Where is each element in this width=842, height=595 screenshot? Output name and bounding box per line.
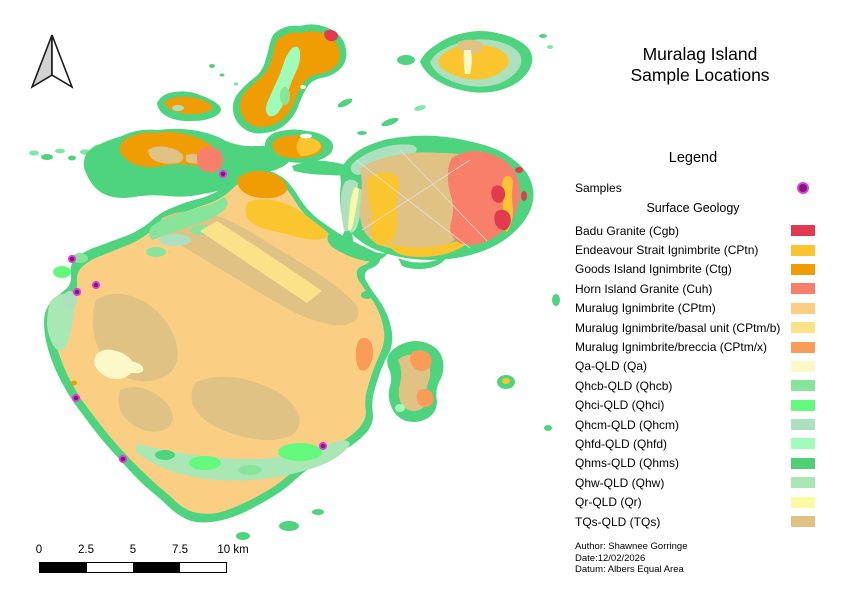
legend-item: Qhci-QLD (Qhci): [575, 396, 815, 415]
legend-item-label: Qhfd-QLD (Qhfd): [575, 437, 667, 451]
legend-item-label: Endeavour Strait Ignimbrite (CPtn): [575, 243, 758, 257]
sample-point: [220, 171, 226, 177]
legend-color-swatch: [791, 400, 815, 411]
scale-bar-tick-label: 5: [130, 544, 136, 556]
map-layout-page: Muralag Island Sample Locations Legend S…: [0, 0, 842, 595]
credit-date: Date:12/02/2026: [575, 553, 687, 565]
legend-item-label: Muralug Ignimbrite/breccia (CPtm/x): [575, 340, 767, 354]
legend-item: Badu Granite (Cgb): [575, 221, 815, 240]
legend-item: Muralug Ignimbrite (CPtm): [575, 299, 815, 318]
legend-color-swatch: [791, 361, 815, 372]
legend-item: Qhfd-QLD (Qhfd): [575, 434, 815, 453]
samples-label: Samples: [575, 181, 622, 195]
legend-item-label: Qhw-QLD (Qhw): [575, 476, 664, 490]
legend-color-swatch: [791, 477, 815, 488]
legend-item: Qhms-QLD (Qhms): [575, 454, 815, 473]
legend-item-label: Qhci-QLD (Qhci): [575, 398, 664, 412]
legend-item: Qa-QLD (Qa): [575, 357, 815, 376]
legend-item: TQs-QLD (TQs): [575, 512, 815, 531]
scale-segment: [40, 563, 87, 572]
legend-item-samples: Samples: [575, 179, 815, 195]
legend-item-label: Muralug Ignimbrite (CPtm): [575, 301, 716, 315]
sample-point: [93, 282, 99, 288]
legend-item: Qhcb-QLD (Qhcb): [575, 376, 815, 395]
legend-item: Muralug Ignimbrite/breccia (CPtm/x): [575, 337, 815, 356]
legend-items-list: Badu Granite (Cgb)Endeavour Strait Ignim…: [575, 221, 815, 531]
legend-group-heading: Surface Geology: [565, 201, 821, 215]
legend-item: Muralug Ignimbrite/basal unit (CPtm/b): [575, 318, 815, 337]
legend-item-label: Qa-QLD (Qa): [575, 359, 647, 373]
sample-marker-icon: [797, 182, 809, 194]
north-arrow-icon: [28, 33, 76, 91]
legend-color-swatch: [791, 419, 815, 430]
island-southeast: [387, 341, 443, 422]
legend-item-label: Horn Island Granite (Cuh): [575, 282, 712, 296]
legend-color-swatch: [791, 264, 815, 275]
legend-color-swatch: [791, 516, 815, 527]
scale-segment: [133, 563, 180, 572]
legend-color-swatch: [791, 225, 815, 236]
legend-item-label: Qhcm-QLD (Qhcm): [575, 418, 679, 432]
legend-item-label: Badu Granite (Cgb): [575, 224, 679, 238]
legend-item: Goods Island Ignimbrite (Ctg): [575, 260, 815, 279]
island-muralag-main: [44, 169, 392, 523]
legend-color-swatch: [791, 342, 815, 353]
legend-color-swatch: [791, 245, 815, 256]
legend-color-swatch: [791, 380, 815, 391]
legend-color-swatch: [791, 497, 815, 508]
island-north-west-small: [157, 91, 221, 121]
credit-datum: Datum: Albers Equal Area: [575, 564, 687, 576]
legend-item: Horn Island Granite (Cuh): [575, 279, 815, 298]
sample-point: [73, 395, 79, 401]
legend-color-swatch: [791, 303, 815, 314]
scale-bar-tick-label: 10 km: [217, 544, 248, 556]
legend-item-label: Qr-QLD (Qr): [575, 495, 642, 509]
scale-bar-segments: [39, 562, 227, 573]
legend-heading: Legend: [565, 150, 821, 166]
legend-item-label: Muralug Ignimbrite/basal unit (CPtm/b): [575, 321, 780, 335]
credits-block: Author: Shawnee Gorringe Date:12/02/2026…: [575, 541, 687, 576]
sample-point: [320, 443, 326, 449]
island-middle-small: [265, 130, 333, 163]
legend-item-label: Qhms-QLD (Qhms): [575, 456, 679, 470]
legend-color-swatch: [791, 458, 815, 469]
sample-point: [69, 256, 75, 262]
scale-bar-tick-label: 2.5: [78, 544, 94, 556]
geology-map: [0, 0, 560, 595]
legend-item-label: TQs-QLD (TQs): [575, 515, 660, 529]
island-northeast: [397, 31, 553, 93]
legend-item: Endeavour Strait Ignimbrite (CPtn): [575, 240, 815, 259]
legend-item-label: Goods Island Ignimbrite (Ctg): [575, 262, 732, 276]
scale-bar-tick-label: 7.5: [172, 544, 188, 556]
legend-color-swatch: [791, 438, 815, 449]
legend-item: Qhcm-QLD (Qhcm): [575, 415, 815, 434]
scale-segment: [87, 563, 134, 572]
legend-item: Qhw-QLD (Qhw): [575, 473, 815, 492]
page-title: Muralag Island Sample Locations: [560, 44, 840, 86]
legend-item: Qr-QLD (Qr): [575, 492, 815, 511]
island-north-center: [209, 24, 346, 133]
legend-color-swatch: [791, 283, 815, 294]
sample-point: [74, 289, 80, 295]
legend-item-label: Qhcb-QLD (Qhcb): [575, 379, 672, 393]
sample-point: [120, 456, 126, 462]
legend-color-swatch: [791, 322, 815, 333]
credit-author: Author: Shawnee Gorringe: [575, 541, 687, 553]
scale-bar-tick-label: 0: [36, 544, 42, 556]
title-line-2: Sample Locations: [560, 65, 840, 86]
map-canvas: [0, 0, 560, 595]
title-line-1: Muralag Island: [560, 44, 840, 65]
scale-segment: [180, 563, 227, 572]
